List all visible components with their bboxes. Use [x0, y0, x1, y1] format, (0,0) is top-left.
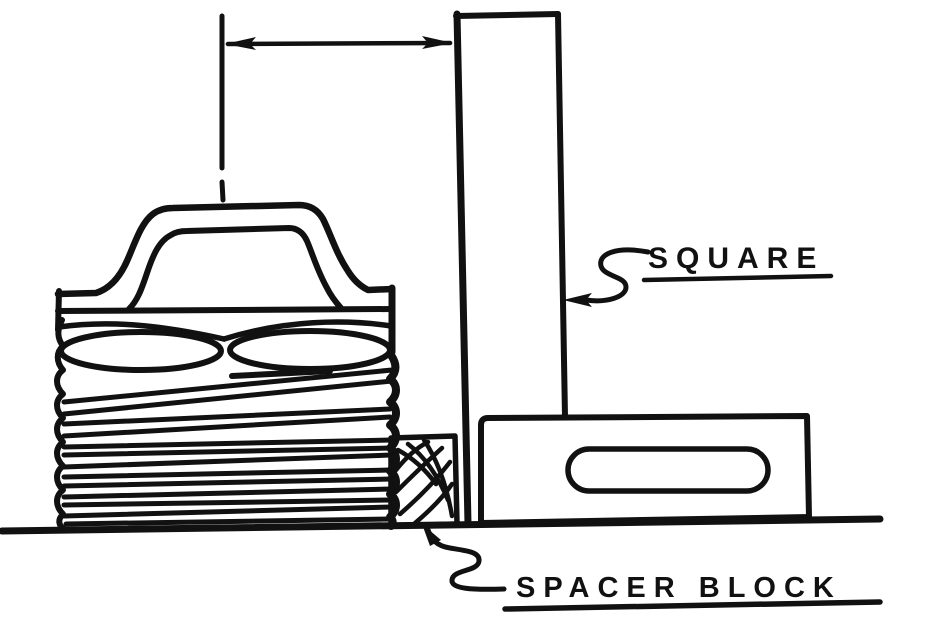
- diagram-svg: SQUARE SPACER BLOCK: [0, 0, 928, 618]
- spacer-block: [391, 436, 457, 526]
- spring-top-band-line: [58, 309, 392, 311]
- technical-diagram: SQUARE SPACER BLOCK: [0, 0, 928, 618]
- coil-spring: [57, 205, 396, 529]
- spacer-block-label: SPACER BLOCK: [516, 572, 842, 604]
- spring-loop-outer: [58, 205, 392, 294]
- spring-loop-inner: [129, 228, 341, 309]
- square-blade-left-edge: [457, 14, 468, 524]
- square-callout: SQUARE: [563, 242, 831, 307]
- square-label-underline: [644, 276, 831, 280]
- spring-coil-lines: [64, 370, 392, 524]
- square-base-slot: [568, 449, 768, 491]
- dimension-line: [228, 43, 450, 44]
- spacer-block-hatching: [396, 440, 452, 524]
- square-blade-top-edge: [456, 14, 558, 16]
- square-leader-line: [578, 250, 648, 301]
- centerline-dash-segment: [222, 182, 223, 200]
- spring-end-coil-right: [230, 331, 390, 369]
- square-base-outline: [481, 416, 809, 523]
- dimension-annotation: [222, 16, 453, 200]
- spacer-block-callout: SPACER BLOCK: [422, 524, 880, 609]
- spacer-leader-line: [427, 527, 504, 589]
- square-blade-right-edge: [558, 14, 565, 417]
- square-label: SQUARE: [648, 242, 824, 275]
- spring-end-coil-left: [61, 332, 221, 370]
